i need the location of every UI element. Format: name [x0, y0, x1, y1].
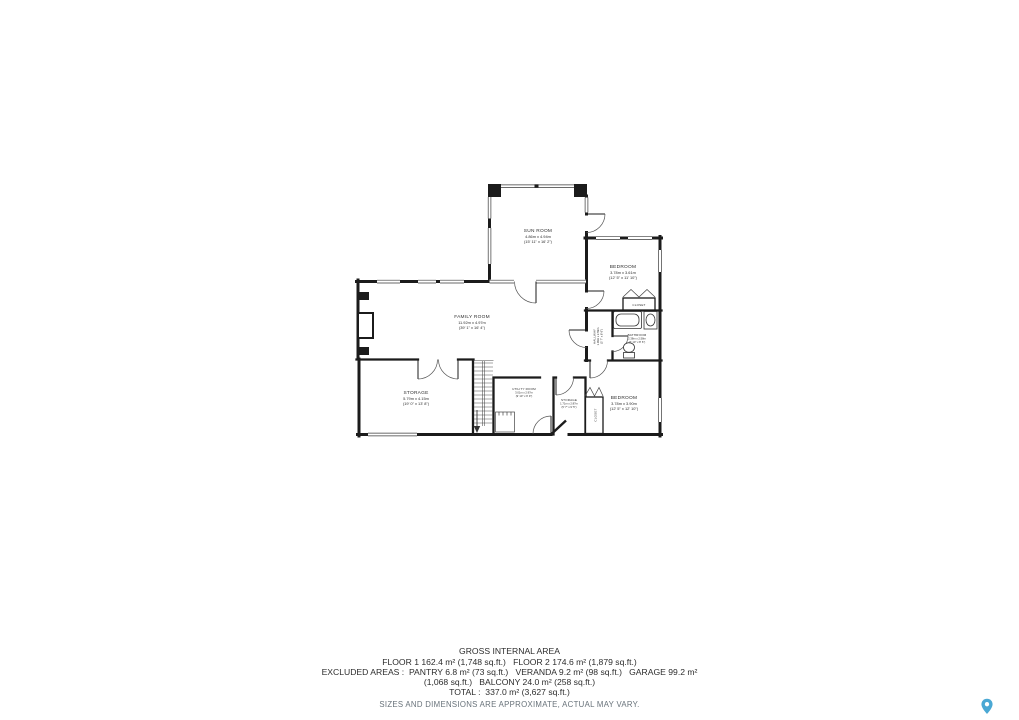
total-area-line: TOTAL : 337.0 m² (3,627 sq.ft.)	[0, 687, 1019, 697]
area-summary: GROSS INTERNAL AREA FLOOR 1 162.4 m² (1,…	[0, 646, 1019, 709]
sun-room-metric: 4.86m x 4.94m	[525, 234, 551, 239]
storage-main-metric: 5.79m x 4.15m	[403, 396, 429, 401]
utility-room-metric: 3.01m x 2.97m	[515, 391, 534, 395]
dimensions-disclaimer: SIZES AND DIMENSIONS ARE APPROXIMATE, AC…	[0, 700, 1019, 709]
bathroom-imperial: (7' 10" x 8' 6")	[629, 340, 646, 344]
closet-upper-box: CLOSET	[623, 290, 655, 311]
staircase	[474, 361, 494, 434]
utility-room-imperial: (9' 10" x 9' 9")	[516, 394, 533, 398]
toilet-bowl	[624, 343, 635, 353]
floor-areas-line: FLOOR 1 162.4 m² (1,748 sq.ft.) FLOOR 2 …	[0, 657, 1019, 667]
location-pin-icon[interactable]	[981, 698, 993, 715]
family-room-label: FAMILY ROOM 11.92m x 4.97m (39' 1" x 16'…	[454, 314, 490, 330]
stair-direction-arrow	[474, 426, 480, 433]
closet-lower-label: CLOSET	[594, 408, 598, 421]
floor-plan-page: CLOSET CLOSET SUN ROOM 4.86m x 4.94m (15…	[0, 0, 1019, 720]
hallway-label: HALLWAY 1.09m x 2.59m (3' 7" x 8' 6")	[592, 327, 603, 346]
storage-small-name: STORAGE	[561, 398, 577, 402]
gross-internal-area-title: GROSS INTERNAL AREA	[0, 646, 1019, 657]
water-heater	[496, 412, 515, 432]
bedroom-upper-label: BEDROOM 3.78m x 3.61m (12' 5" x 11' 10")	[609, 264, 638, 280]
bedroom-lower-label: BEDROOM 3.78m x 3.90m (12' 5" x 12' 10")	[610, 395, 639, 411]
bedroom-lower-metric: 3.78m x 3.90m	[611, 401, 637, 406]
storage-small-metric: 1.71m x 2.87m	[560, 402, 579, 406]
bedroom-lower-imperial: (12' 5" x 12' 10")	[610, 406, 639, 411]
storage-main-label: STORAGE 5.79m x 4.15m (19' 0" x 13' 8")	[403, 390, 430, 406]
storage-main-imperial: (19' 0" x 13' 8")	[403, 401, 430, 406]
family-room-metric: 11.92m x 4.97m	[458, 320, 486, 325]
closet-lower-box: CLOSET	[585, 388, 603, 434]
bedroom-upper-imperial: (12' 5" x 11' 10")	[609, 275, 638, 280]
utility-room-name: UTILITY ROOM	[512, 387, 536, 391]
storage-small-label: STORAGE 1.71m x 2.87m (5' 7" x 9' 5")	[560, 398, 579, 409]
bathroom-label: BATHROOM 2.38m x 2.58m (7' 10" x 8' 6")	[628, 333, 647, 344]
toilet-tank	[624, 353, 635, 359]
hallway-metric: 1.09m x 2.59m	[596, 327, 600, 346]
family-room-imperial: (39' 1" x 16' 4")	[459, 325, 486, 330]
bathroom-name: BATHROOM	[628, 333, 647, 337]
closet-upper-label: CLOSET	[632, 303, 645, 307]
floor-plan-drawing: CLOSET CLOSET SUN ROOM 4.86m x 4.94m (15…	[340, 170, 690, 462]
storage-small-imperial: (5' 7" x 9' 5")	[561, 405, 576, 409]
sun-room-label: SUN ROOM 4.86m x 4.94m (15' 11" x 16' 2"…	[524, 228, 553, 244]
hallway-name: HALLWAY	[592, 329, 596, 344]
hallway-imperial: (3' 7" x 8' 6")	[599, 329, 603, 344]
bedroom-upper-metric: 3.78m x 3.61m	[610, 270, 636, 275]
excluded-areas-continued-line: (1,068 sq.ft.) BALCONY 24.0 m² (258 sq.f…	[0, 677, 1019, 687]
sun-room-imperial: (15' 11" x 16' 2")	[524, 239, 553, 244]
excluded-areas-line: EXCLUDED AREAS : PANTRY 6.8 m² (73 sq.ft…	[0, 667, 1019, 677]
bathroom-metric: 2.38m x 2.58m	[628, 337, 647, 341]
fireplace	[358, 313, 373, 338]
utility-room-label: UTILITY ROOM 3.01m x 2.97m (9' 10" x 9' …	[512, 387, 536, 398]
